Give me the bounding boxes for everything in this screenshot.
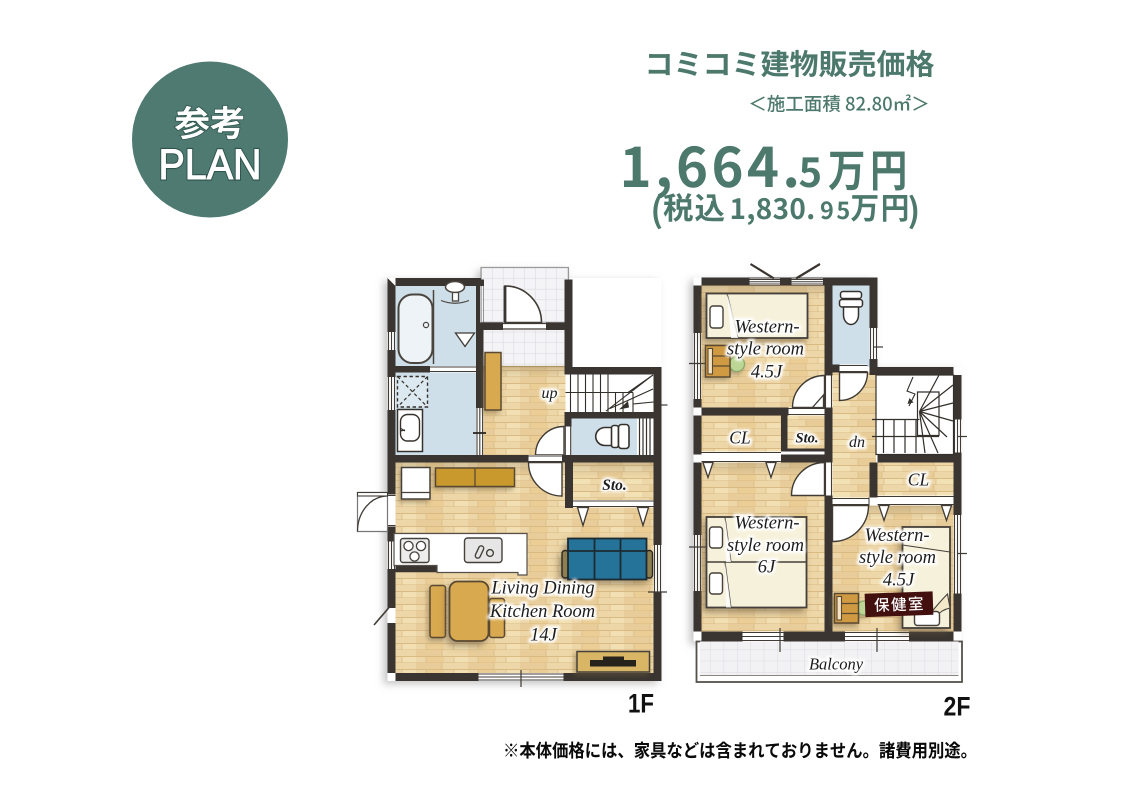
svg-text:2F: 2F: [944, 692, 971, 722]
svg-text:Balcony: Balcony: [809, 655, 864, 674]
svg-text:style room: style room: [727, 340, 804, 360]
svg-text:CL: CL: [729, 428, 750, 448]
svg-text:6J: 6J: [758, 558, 776, 578]
svg-text:1F: 1F: [628, 689, 654, 719]
svg-text:CL: CL: [908, 470, 929, 490]
svg-text:up: up: [542, 385, 558, 402]
svg-text:Western-: Western-: [734, 514, 799, 534]
svg-text:14J: 14J: [530, 626, 558, 646]
svg-text:style room: style room: [859, 548, 936, 568]
svg-text:4.5J: 4.5J: [751, 363, 783, 383]
svg-text:style room: style room: [727, 536, 804, 556]
svg-text:Western-: Western-: [864, 526, 929, 546]
svg-text:Western-: Western-: [734, 318, 799, 338]
svg-text:Sto.: Sto.: [602, 477, 627, 494]
svg-text:4.5J: 4.5J: [883, 571, 915, 591]
svg-text:Kitchen Room: Kitchen Room: [489, 602, 595, 622]
svg-text:dn: dn: [849, 434, 865, 451]
svg-text:PLAN: PLAN: [159, 141, 262, 189]
svg-text:Sto.: Sto.: [796, 431, 819, 447]
svg-text:Living Dining: Living Dining: [490, 579, 594, 599]
